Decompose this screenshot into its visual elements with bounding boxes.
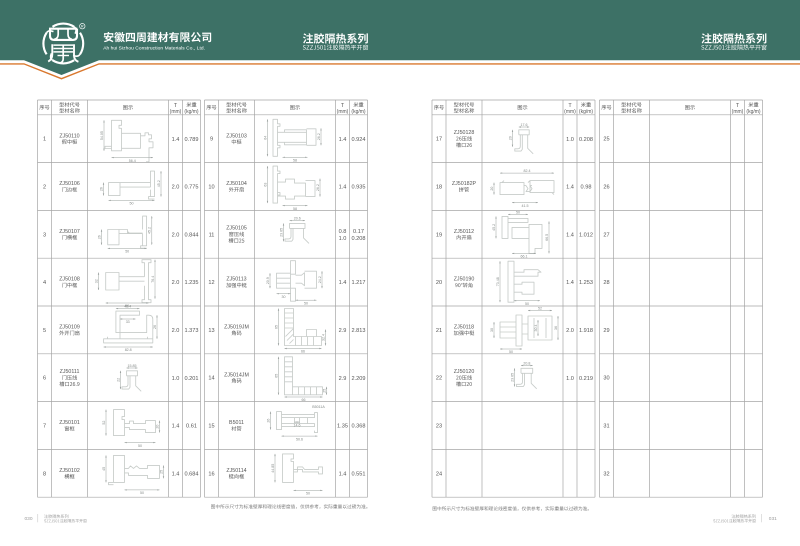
svg-text:(kg/m): (kg/m) bbox=[746, 109, 761, 115]
svg-text:ZJ50182P: ZJ50182P bbox=[452, 181, 477, 187]
svg-text:030: 030 bbox=[24, 516, 32, 522]
svg-text:58: 58 bbox=[293, 207, 297, 211]
svg-text:ZJ50113: ZJ50113 bbox=[226, 277, 246, 283]
svg-text:50: 50 bbox=[125, 250, 129, 254]
svg-text:ZJ50102: ZJ50102 bbox=[59, 468, 80, 474]
svg-text:6: 6 bbox=[43, 376, 46, 382]
svg-text:ZJ5019JM: ZJ5019JM bbox=[224, 325, 249, 331]
svg-text:1.35: 1.35 bbox=[337, 424, 348, 430]
svg-text:22: 22 bbox=[436, 376, 442, 382]
svg-text:0.61: 0.61 bbox=[186, 424, 197, 430]
svg-text:20.9: 20.9 bbox=[266, 277, 270, 284]
svg-text:23: 23 bbox=[436, 424, 442, 430]
svg-text:1.4: 1.4 bbox=[339, 280, 347, 286]
svg-text:32: 32 bbox=[94, 279, 98, 283]
svg-text:20: 20 bbox=[155, 425, 159, 429]
svg-text:25: 25 bbox=[159, 470, 163, 474]
svg-text:2.209: 2.209 bbox=[352, 376, 366, 382]
svg-text:65: 65 bbox=[274, 374, 278, 378]
svg-text:82.4: 82.4 bbox=[524, 169, 531, 173]
svg-text:29: 29 bbox=[603, 328, 609, 334]
svg-text:0.201: 0.201 bbox=[185, 376, 199, 382]
svg-text:2.9: 2.9 bbox=[339, 376, 347, 382]
svg-text:17.6: 17.6 bbox=[521, 123, 528, 127]
svg-text:031: 031 bbox=[769, 516, 777, 522]
svg-text:2.0: 2.0 bbox=[172, 185, 180, 191]
svg-text:0.208: 0.208 bbox=[352, 236, 366, 242]
svg-text:0.775: 0.775 bbox=[185, 185, 199, 191]
svg-text:1.4: 1.4 bbox=[566, 232, 574, 238]
svg-text:0.684: 0.684 bbox=[185, 471, 199, 477]
svg-text:30: 30 bbox=[282, 295, 286, 299]
svg-text:32: 32 bbox=[603, 471, 609, 477]
svg-text:0.368: 0.368 bbox=[352, 424, 366, 430]
svg-text:15: 15 bbox=[208, 424, 214, 430]
svg-text:24.2: 24.2 bbox=[318, 276, 322, 283]
svg-text:1.4: 1.4 bbox=[172, 137, 180, 143]
svg-text:2: 2 bbox=[43, 185, 46, 191]
svg-text:2.813: 2.813 bbox=[352, 328, 366, 334]
svg-text:1.4: 1.4 bbox=[339, 137, 347, 143]
svg-text:0.924: 0.924 bbox=[352, 137, 366, 143]
svg-text:26: 26 bbox=[99, 187, 103, 191]
svg-text:B5011A: B5011A bbox=[312, 405, 325, 409]
svg-text:20: 20 bbox=[490, 187, 494, 191]
svg-text:5: 5 bbox=[43, 328, 46, 334]
svg-text:ZJ50118: ZJ50118 bbox=[454, 325, 474, 331]
svg-text:11: 11 bbox=[209, 232, 215, 238]
svg-text:50: 50 bbox=[304, 301, 308, 305]
svg-text:1.253: 1.253 bbox=[579, 280, 593, 286]
svg-text:(mm): (mm) bbox=[170, 109, 182, 115]
svg-text:3: 3 bbox=[43, 232, 46, 238]
svg-text:(kg/m): (kg/m) bbox=[351, 109, 366, 115]
svg-text:43.4: 43.4 bbox=[124, 305, 131, 309]
svg-text:66.1: 66.1 bbox=[521, 255, 528, 259]
svg-text:ZJ50114: ZJ50114 bbox=[226, 468, 246, 474]
svg-text:31: 31 bbox=[603, 424, 609, 430]
svg-text:0.98: 0.98 bbox=[581, 185, 592, 191]
svg-text:54.05: 54.05 bbox=[100, 131, 104, 140]
svg-text:45.2: 45.2 bbox=[492, 224, 496, 231]
svg-text:1.4: 1.4 bbox=[172, 424, 180, 430]
svg-text:33: 33 bbox=[126, 320, 130, 324]
svg-text:50: 50 bbox=[509, 350, 513, 354]
svg-text:0.17: 0.17 bbox=[353, 229, 364, 235]
svg-text:ZJ50105: ZJ50105 bbox=[226, 226, 247, 232]
svg-text:ZJ50101: ZJ50101 bbox=[59, 420, 80, 426]
svg-text:26: 26 bbox=[97, 235, 101, 239]
svg-text:ZJ50112: ZJ50112 bbox=[454, 229, 474, 235]
svg-text:0.935: 0.935 bbox=[352, 185, 366, 191]
svg-text:50: 50 bbox=[138, 444, 142, 448]
svg-text:63: 63 bbox=[263, 183, 267, 187]
svg-text:24: 24 bbox=[436, 471, 442, 477]
svg-text:0.208: 0.208 bbox=[579, 137, 593, 143]
svg-text:ZJ50120: ZJ50120 bbox=[454, 369, 475, 375]
svg-text:45.2: 45.2 bbox=[148, 227, 152, 234]
svg-text:7: 7 bbox=[43, 424, 46, 430]
svg-text:58: 58 bbox=[293, 159, 297, 163]
svg-text:ZJ50109: ZJ50109 bbox=[59, 325, 80, 331]
svg-text:65: 65 bbox=[274, 325, 278, 329]
svg-text:ZJ50104: ZJ50104 bbox=[226, 181, 247, 187]
svg-text:26.2: 26.2 bbox=[317, 133, 321, 140]
svg-text:50: 50 bbox=[516, 210, 520, 214]
svg-text:2.0: 2.0 bbox=[566, 328, 574, 334]
svg-text:14: 14 bbox=[208, 376, 214, 382]
svg-text:26.2: 26.2 bbox=[316, 184, 320, 191]
svg-text:1: 1 bbox=[43, 137, 46, 143]
svg-text:14.6: 14.6 bbox=[294, 423, 301, 427]
svg-text:2.0: 2.0 bbox=[172, 232, 180, 238]
svg-text:9: 9 bbox=[210, 137, 213, 143]
svg-text:32.4: 32.4 bbox=[321, 334, 325, 341]
svg-text:52: 52 bbox=[102, 421, 106, 425]
svg-text:26: 26 bbox=[153, 325, 157, 329]
svg-text:13: 13 bbox=[208, 328, 214, 334]
svg-text:20.8: 20.8 bbox=[523, 362, 530, 366]
svg-text:(mm): (mm) bbox=[337, 109, 349, 115]
svg-text:45: 45 bbox=[102, 467, 106, 471]
svg-text:0.789: 0.789 bbox=[185, 137, 199, 143]
svg-text:20.6: 20.6 bbox=[294, 217, 301, 221]
svg-text:20: 20 bbox=[436, 280, 442, 286]
svg-text:R: R bbox=[81, 25, 84, 29]
svg-text:ZJ50190: ZJ50190 bbox=[454, 277, 475, 283]
svg-text:56.4: 56.4 bbox=[129, 159, 136, 163]
svg-text:30: 30 bbox=[603, 376, 609, 382]
svg-text:Ah hui Sizhou Construction Mat: Ah hui Sizhou Construction Materials Co.… bbox=[103, 46, 205, 52]
svg-text:64: 64 bbox=[263, 136, 267, 140]
svg-text:73.48: 73.48 bbox=[496, 277, 500, 286]
svg-text:(mm): (mm) bbox=[732, 109, 744, 115]
svg-text:27: 27 bbox=[603, 232, 609, 238]
svg-text:B5011: B5011 bbox=[229, 420, 244, 426]
svg-text:2.9: 2.9 bbox=[339, 328, 347, 334]
svg-text:1.0: 1.0 bbox=[172, 376, 180, 382]
svg-text:0.8: 0.8 bbox=[339, 229, 347, 235]
svg-text:ZJ50128: ZJ50128 bbox=[454, 130, 475, 136]
svg-text:1.235: 1.235 bbox=[185, 280, 199, 286]
svg-text:1.0: 1.0 bbox=[339, 236, 347, 242]
svg-text:26: 26 bbox=[266, 419, 270, 423]
svg-text:16: 16 bbox=[208, 471, 214, 477]
svg-text:ZJ50110: ZJ50110 bbox=[59, 133, 79, 139]
svg-text:(mm): (mm) bbox=[564, 109, 576, 115]
svg-text:ZJ50106: ZJ50106 bbox=[59, 181, 80, 187]
svg-text:18: 18 bbox=[436, 185, 442, 191]
svg-text:44.85: 44.85 bbox=[271, 464, 275, 473]
svg-text:76.4: 76.4 bbox=[151, 276, 155, 283]
svg-text:ZJ5014JM: ZJ5014JM bbox=[224, 372, 249, 378]
svg-text:10: 10 bbox=[208, 185, 214, 191]
svg-text:8: 8 bbox=[43, 471, 46, 477]
svg-text:1.918: 1.918 bbox=[579, 328, 593, 334]
svg-text:50: 50 bbox=[140, 491, 144, 495]
svg-text:0.551: 0.551 bbox=[352, 471, 366, 477]
svg-text:1.373: 1.373 bbox=[185, 328, 199, 334]
svg-text:1.012: 1.012 bbox=[579, 232, 593, 238]
svg-text:50: 50 bbox=[130, 202, 134, 206]
svg-text:66.5: 66.5 bbox=[545, 234, 549, 241]
svg-text:66: 66 bbox=[302, 398, 306, 402]
svg-text:36: 36 bbox=[554, 326, 558, 330]
svg-text:ZJ50111: ZJ50111 bbox=[60, 369, 80, 375]
svg-text:17: 17 bbox=[436, 137, 442, 143]
svg-text:50.6: 50.6 bbox=[296, 437, 303, 441]
svg-text:25: 25 bbox=[603, 137, 609, 143]
svg-text:ZJ50107: ZJ50107 bbox=[59, 229, 80, 235]
svg-text:26: 26 bbox=[603, 185, 609, 191]
svg-text:50: 50 bbox=[525, 302, 529, 306]
svg-text:0.219: 0.219 bbox=[579, 376, 593, 382]
svg-text:23.65: 23.65 bbox=[510, 373, 514, 382]
svg-text:2.0: 2.0 bbox=[172, 328, 180, 334]
svg-text:15.85: 15.85 bbox=[128, 364, 137, 368]
svg-text:52: 52 bbox=[538, 307, 542, 311]
svg-text:30.4: 30.4 bbox=[534, 325, 538, 332]
svg-text:1.4: 1.4 bbox=[339, 471, 347, 477]
svg-text:20: 20 bbox=[508, 136, 512, 140]
svg-text:1.4: 1.4 bbox=[566, 280, 574, 286]
svg-text:82.8: 82.8 bbox=[125, 348, 132, 352]
svg-text:1.4: 1.4 bbox=[339, 185, 347, 191]
svg-text:45.2: 45.2 bbox=[157, 180, 161, 187]
svg-text:1.0: 1.0 bbox=[566, 376, 574, 382]
svg-text:4: 4 bbox=[43, 280, 46, 286]
svg-text:1.217: 1.217 bbox=[352, 280, 366, 286]
svg-text:41.5: 41.5 bbox=[522, 204, 529, 208]
svg-text:25: 25 bbox=[322, 389, 326, 393]
svg-text:1.4: 1.4 bbox=[566, 185, 574, 191]
svg-text:(kg/m): (kg/m) bbox=[579, 109, 594, 115]
svg-text:50: 50 bbox=[306, 492, 310, 496]
svg-text:12: 12 bbox=[208, 280, 214, 286]
svg-text:30: 30 bbox=[490, 328, 494, 332]
svg-text:ZJ50103: ZJ50103 bbox=[226, 133, 247, 139]
svg-text:2.0: 2.0 bbox=[172, 280, 180, 286]
svg-text:22: 22 bbox=[116, 378, 120, 382]
svg-text:0.844: 0.844 bbox=[185, 232, 199, 238]
svg-text:1.0: 1.0 bbox=[566, 137, 574, 143]
svg-text:21: 21 bbox=[436, 328, 442, 334]
svg-text:19: 19 bbox=[436, 232, 442, 238]
svg-text:(kg/m): (kg/m) bbox=[184, 109, 199, 115]
svg-text:23.65: 23.65 bbox=[279, 228, 283, 237]
svg-text:28: 28 bbox=[603, 280, 609, 286]
svg-text:1.4: 1.4 bbox=[172, 471, 180, 477]
svg-text:66: 66 bbox=[301, 350, 305, 354]
svg-text:ZJ50108: ZJ50108 bbox=[59, 277, 80, 283]
